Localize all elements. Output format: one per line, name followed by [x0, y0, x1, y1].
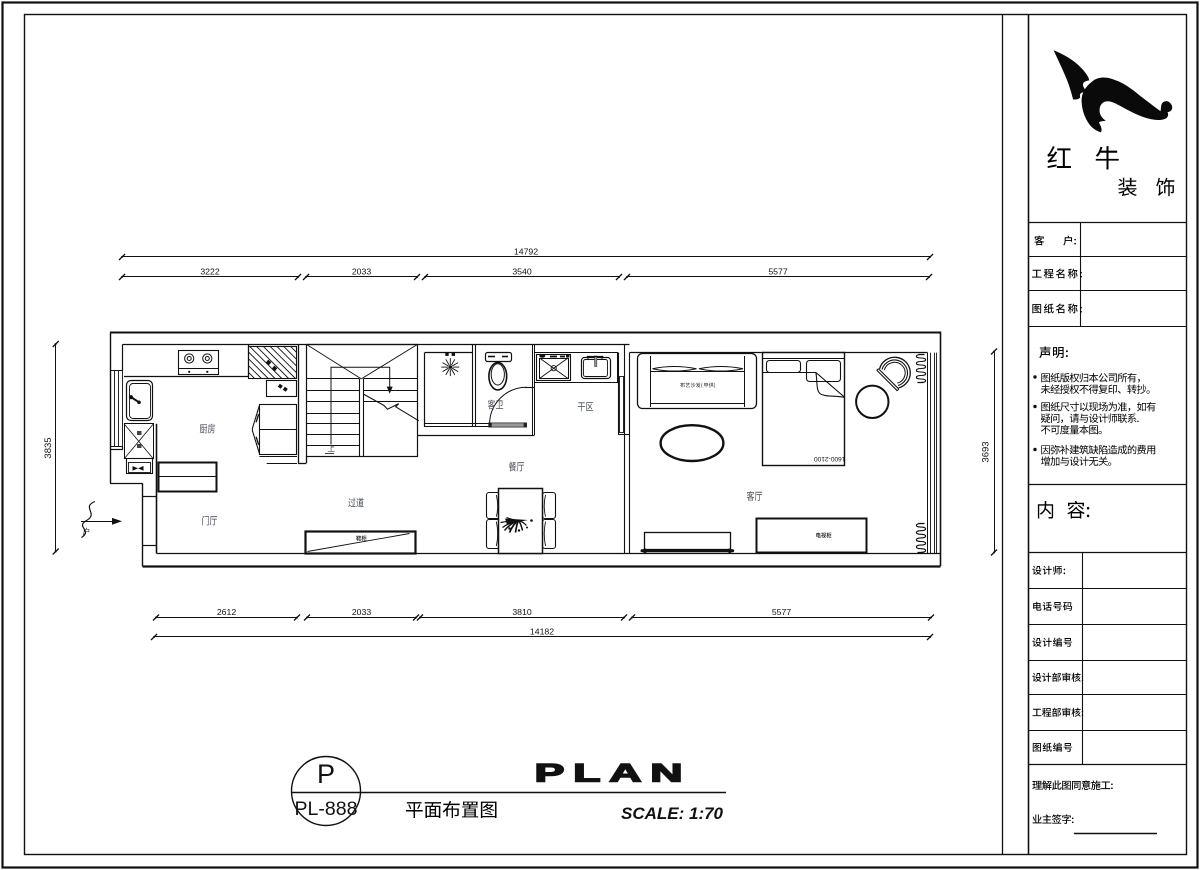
svg-text:1600-2100: 1600-2100 — [814, 455, 846, 462]
svg-text:PL-888: PL-888 — [295, 798, 358, 820]
svg-text:PLAN: PLAN — [535, 759, 692, 787]
svg-text:5577: 5577 — [768, 267, 787, 277]
svg-text:3835: 3835 — [43, 437, 54, 458]
svg-text:3693: 3693 — [981, 441, 992, 462]
svg-text:3810: 3810 — [512, 607, 531, 617]
svg-text:3540: 3540 — [512, 267, 531, 277]
svg-text:3222: 3222 — [200, 267, 219, 277]
svg-text:SCALE: 1:70: SCALE: 1:70 — [621, 804, 724, 823]
svg-text:5577: 5577 — [772, 607, 791, 617]
svg-text:2033: 2033 — [352, 267, 371, 277]
svg-text:2612: 2612 — [217, 607, 236, 617]
svg-text:P: P — [317, 759, 335, 789]
svg-text:14792: 14792 — [514, 247, 538, 257]
svg-text:2033: 2033 — [352, 607, 371, 617]
svg-text:14182: 14182 — [530, 627, 554, 637]
